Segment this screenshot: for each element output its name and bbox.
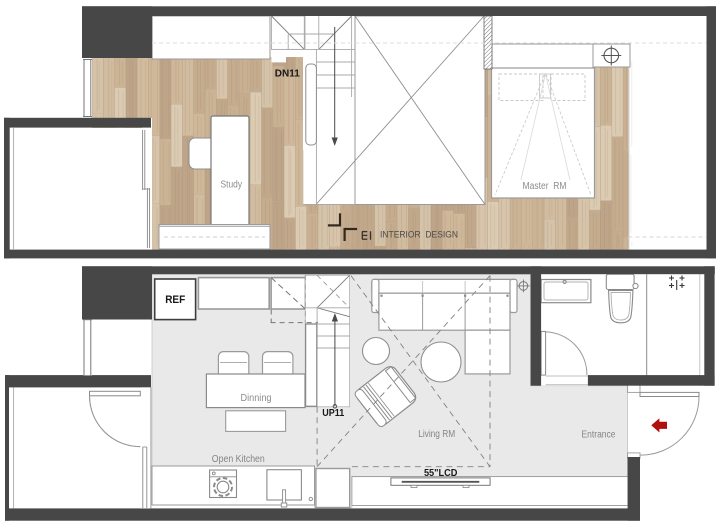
svg-text:Entrance: Entrance	[582, 429, 616, 440]
svg-text:INTERIOR DESIGN: INTERIOR DESIGN	[380, 230, 458, 241]
svg-text:REF: REF	[165, 294, 185, 306]
svg-text:Dinning: Dinning	[241, 393, 272, 404]
svg-text:DN11: DN11	[275, 67, 300, 79]
svg-text:55"LCD: 55"LCD	[424, 467, 458, 479]
svg-text:Open Kitchen: Open Kitchen	[212, 454, 265, 465]
svg-text:Living RM: Living RM	[418, 429, 455, 440]
svg-text:UP11: UP11	[322, 407, 344, 419]
svg-text:Master RM: Master RM	[523, 181, 567, 192]
svg-text:Study: Study	[221, 180, 243, 191]
